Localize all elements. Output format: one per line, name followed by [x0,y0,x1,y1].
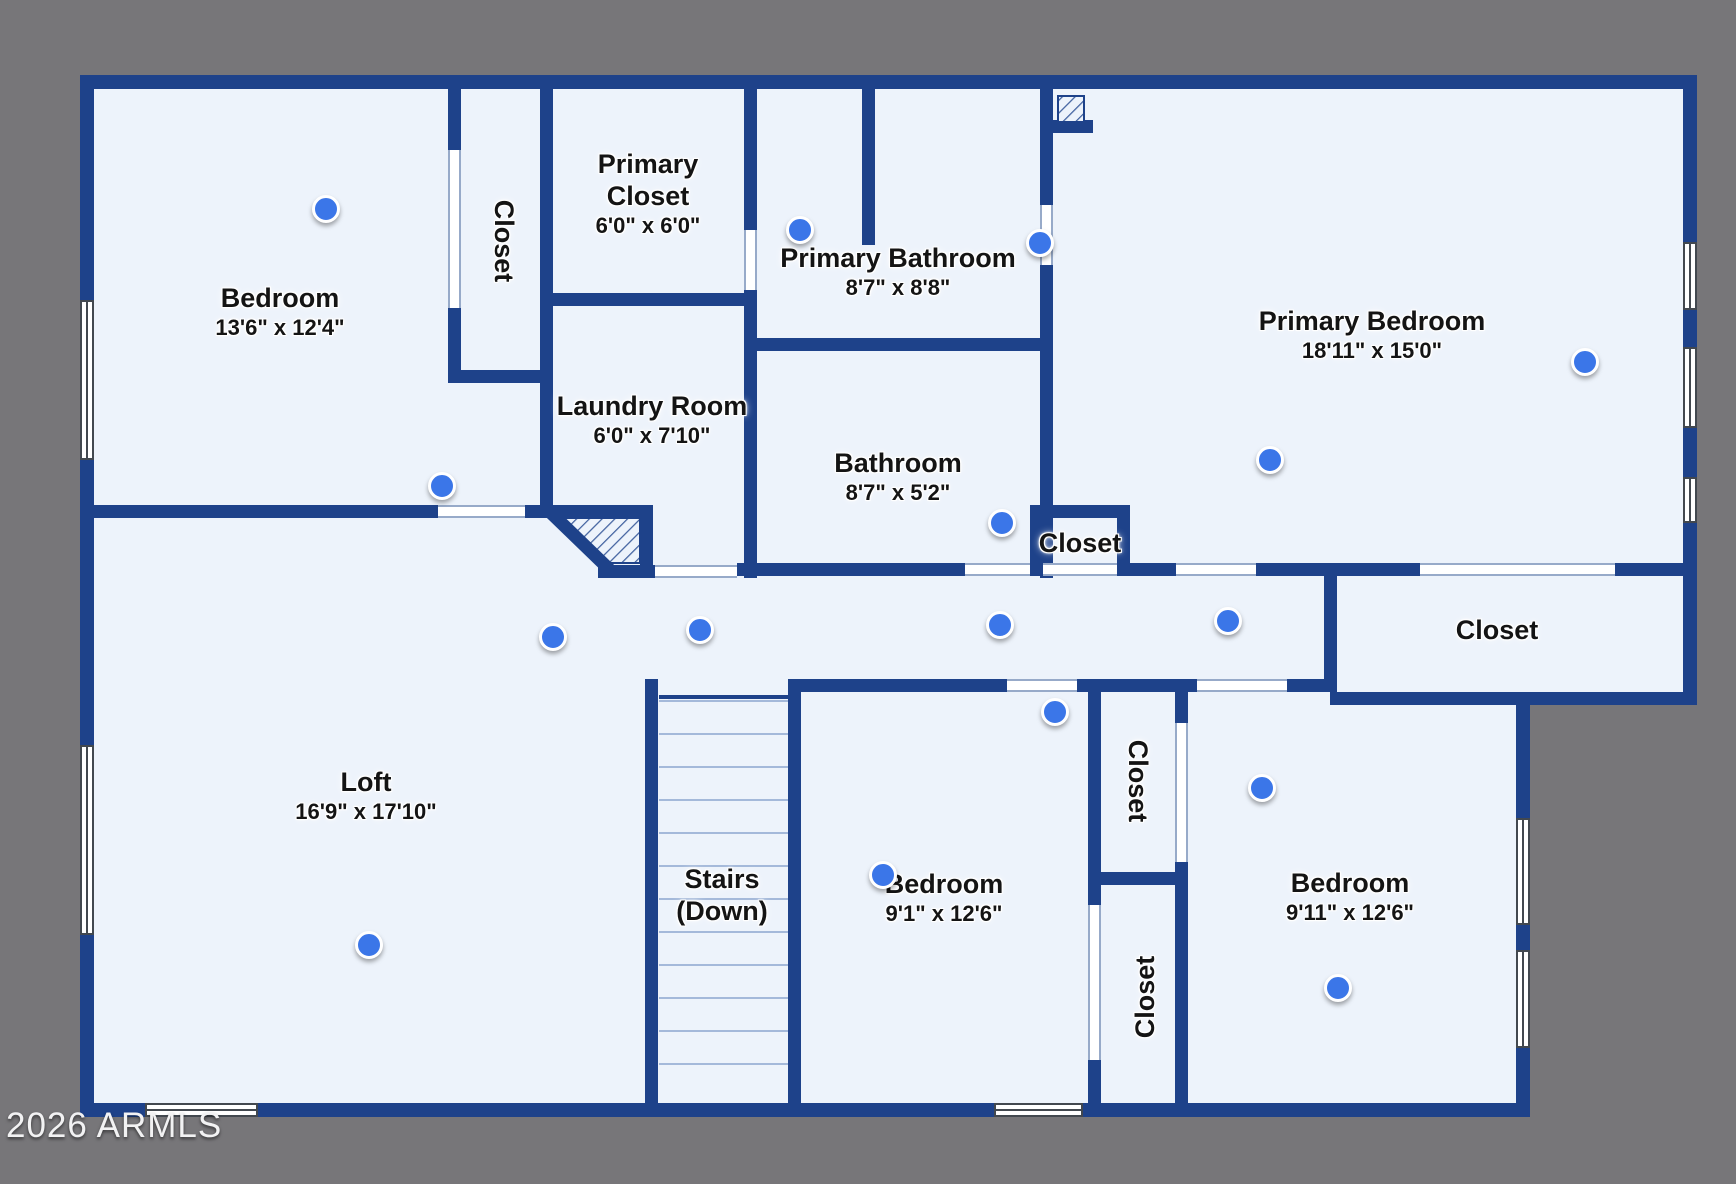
window-divider [1689,349,1691,426]
photo-marker-dot[interactable] [1256,446,1284,474]
room-name-bedroom-se: Bedroom [1286,868,1414,900]
wall [1175,862,1188,1103]
photo-marker-dot[interactable] [428,472,456,500]
room-label-primary-closet: PrimaryCloset6'0" x 6'0" [596,149,701,239]
wall [552,293,757,306]
window-divider [996,1109,1081,1111]
wall [1130,563,1176,576]
door-opening [744,230,757,290]
room-dimensions-bathroom: 8'7" x 5'2" [834,480,962,506]
floor-plan: 2026 ARMLS Bedroom13'6" x 12'4"ClosetPri… [0,0,1736,1184]
window-divider [1522,952,1524,1046]
room-label-stairs: Stairs(Down) [676,864,767,928]
room-dimensions-primary-bedroom: 18'11" x 15'0" [1259,338,1486,364]
wall [598,565,655,578]
door-opening [1175,723,1188,862]
window-divider [86,747,88,933]
wall [862,88,875,245]
room-label-closet-right: Closet [1456,615,1539,647]
photo-marker-dot[interactable] [686,616,714,644]
stair-tread [659,1063,788,1065]
photo-marker-dot[interactable] [355,931,383,959]
wall [1088,1060,1101,1103]
room-name-bathroom: Bathroom [834,448,962,480]
door-opening [1420,563,1615,576]
room-label-primary-bathroom: Primary Bathroom8'7" x 8'8" [780,243,1016,301]
wall [744,338,1053,351]
door-opening [1176,563,1256,576]
watermark-text: 2026 ARMLS [6,1106,222,1146]
room-label-bedroom-nw: Bedroom13'6" x 12'4" [215,283,344,341]
photo-marker-dot[interactable] [1214,607,1242,635]
room-name-stairs: (Down) [676,896,767,928]
room-label-loft: Loft16'9" x 17'10" [295,767,436,825]
photo-marker-dot[interactable] [312,195,340,223]
door-opening [448,150,461,308]
window [1516,950,1530,1048]
room-label-bathroom: Bathroom8'7" x 5'2" [834,448,962,506]
door-opening [1088,905,1101,1060]
stairs-entry-edge [659,695,788,699]
door-opening [1043,563,1117,576]
room-name-laundry-room: Laundry Room [557,391,748,423]
wall [525,505,653,518]
wall [448,88,461,150]
window-divider [1689,479,1691,521]
door-opening [1007,679,1077,692]
room-name-bedroom-nw: Bedroom [215,283,344,315]
room-dimensions-laundry-room: 6'0" x 7'10" [557,423,748,449]
wall [788,679,801,1103]
room-label-bedroom-s: Bedroom9'1" x 12'6" [885,869,1004,927]
room-name-closet-mid-upper: Closet [1121,740,1153,823]
photo-marker-dot[interactable] [786,216,814,244]
stair-tread [659,799,788,801]
wall [94,505,438,518]
door-opening [438,505,525,518]
wall [737,563,965,576]
room-name-primary-bedroom: Primary Bedroom [1259,306,1486,338]
photo-marker-dot[interactable] [986,611,1014,639]
wall [744,88,757,230]
room-name-closet-mid-lower: Closet [1130,956,1162,1039]
room-label-closet-bathroom: Closet [1039,528,1122,560]
door-opening [965,563,1030,576]
photo-marker-dot[interactable] [1571,348,1599,376]
photo-marker-dot[interactable] [539,623,567,651]
wall [1040,88,1053,205]
wall [801,679,1007,692]
window [1683,347,1697,428]
room-dimensions-loft: 16'9" x 17'10" [295,799,436,825]
wall [1287,679,1330,692]
room-name-closet-bathroom: Closet [1039,528,1122,560]
room-label-bedroom-se: Bedroom9'11" x 12'6" [1286,868,1414,926]
window [1683,242,1697,310]
window-divider [1522,820,1524,923]
room-name-stairs: Stairs [676,864,767,896]
wall [645,679,658,1103]
window [1516,818,1530,925]
stair-tread [659,733,788,735]
wall [80,75,1697,89]
room-label-closet-nw: Closet [487,200,519,283]
photo-marker-dot[interactable] [1026,229,1054,257]
room-name-closet-right: Closet [1456,615,1539,647]
wall [448,370,553,383]
wall [80,75,94,1117]
room-name-primary-closet: Closet [596,181,701,213]
room-dimensions-primary-bathroom: 8'7" x 8'8" [780,275,1016,301]
photo-marker-dot[interactable] [988,509,1016,537]
photo-marker-dot[interactable] [1248,774,1276,802]
wall [1324,576,1337,692]
photo-marker-dot[interactable] [869,861,897,889]
window [1683,477,1697,523]
photo-marker-dot[interactable] [1041,698,1069,726]
room-label-closet-mid-lower: Closet [1130,956,1162,1039]
wall [1256,563,1420,576]
wall [80,1103,1530,1117]
wall [1030,505,1130,518]
stair-tread [659,1030,788,1032]
room-name-primary-bathroom: Primary Bathroom [780,243,1016,275]
room-name-primary-closet: Primary [596,149,701,181]
room-dimensions-bedroom-se: 9'11" x 12'6" [1286,900,1414,926]
wall [1330,692,1697,705]
room-dimensions-primary-closet: 6'0" x 6'0" [596,213,701,239]
stair-tread [659,931,788,933]
wall [1615,563,1697,576]
wall [1088,872,1188,885]
wall [1175,679,1188,723]
stair-tread [659,997,788,999]
room-name-loft: Loft [295,767,436,799]
room-label-closet-mid-upper: Closet [1121,740,1153,823]
door-opening [1197,679,1287,692]
stair-tread [659,766,788,768]
window-divider [86,302,88,458]
room-label-primary-bedroom: Primary Bedroom18'11" x 15'0" [1259,306,1486,364]
window [80,745,94,935]
window [994,1103,1083,1117]
wall [1046,120,1093,133]
door-opening [655,565,737,578]
room-dimensions-bedroom-nw: 13'6" x 12'4" [215,315,344,341]
photo-marker-dot[interactable] [1324,974,1352,1002]
stair-tread [659,700,788,702]
stair-tread [659,832,788,834]
stair-tread [659,964,788,966]
room-dimensions-bedroom-s: 9'1" x 12'6" [885,901,1004,927]
room-label-laundry-room: Laundry Room6'0" x 7'10" [557,391,748,449]
room-name-closet-nw: Closet [487,200,519,283]
window [80,300,94,460]
window-divider [1689,244,1691,308]
room-name-bedroom-s: Bedroom [885,869,1004,901]
